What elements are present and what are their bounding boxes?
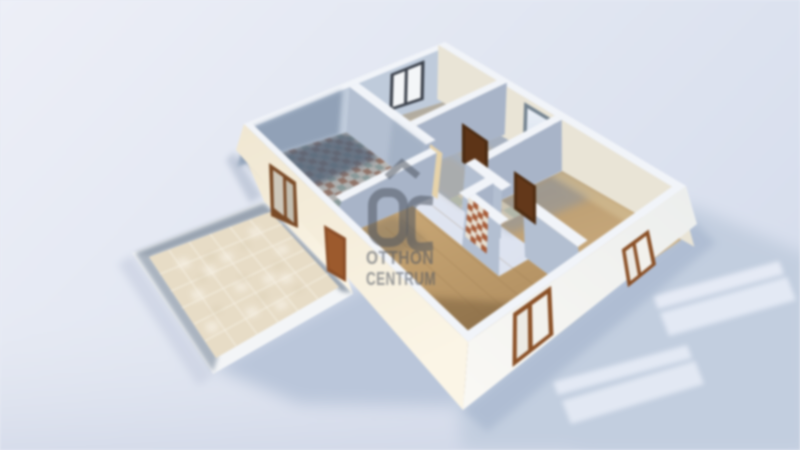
svg-text:CENTRUM: CENTRUM (366, 269, 436, 289)
svg-text:OTTHON: OTTHON (366, 248, 434, 268)
